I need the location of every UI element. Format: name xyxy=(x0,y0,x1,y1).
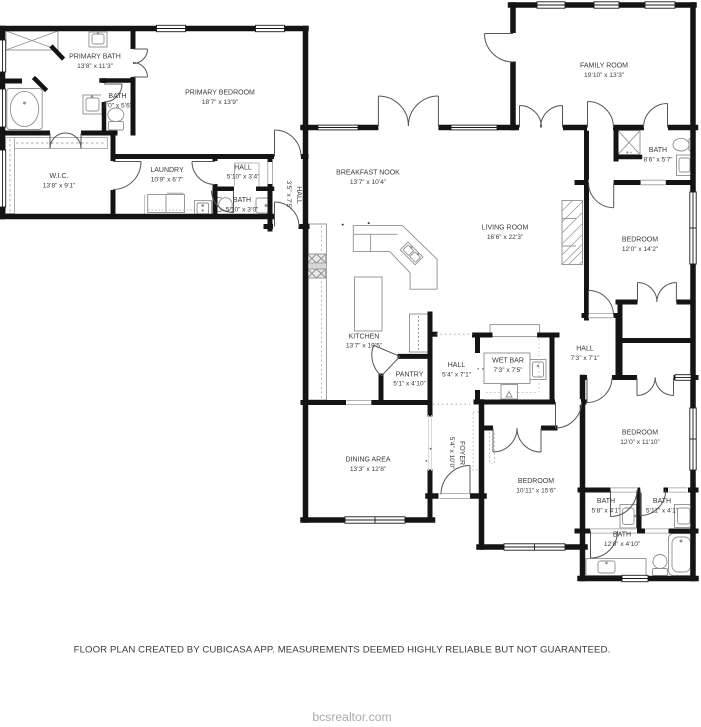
svg-text:5’10” x 3’0”: 5’10” x 3’0” xyxy=(226,207,259,214)
svg-text:5’4” x 7’1”: 5’4” x 7’1” xyxy=(442,371,471,378)
svg-text:13’8” x 11’3”: 13’8” x 11’3” xyxy=(77,63,113,70)
svg-text:BATH: BATH xyxy=(597,498,615,505)
svg-text:KITCHEN: KITCHEN xyxy=(349,334,380,341)
svg-text:5’10” x 3’4”: 5’10” x 3’4” xyxy=(227,174,260,181)
svg-text:BATH: BATH xyxy=(613,532,631,539)
svg-text:19’10” x 13’3”: 19’10” x 13’3” xyxy=(584,72,624,79)
svg-text:5’8” x 4’1”: 5’8” x 4’1” xyxy=(592,507,621,514)
svg-text:13’7” x 19’5”: 13’7” x 19’5” xyxy=(346,343,382,350)
svg-text:HALL: HALL xyxy=(576,346,594,353)
svg-text:HALL: HALL xyxy=(448,362,466,369)
svg-text:13’3” x 12’8”: 13’3” x 12’8” xyxy=(350,466,386,473)
svg-text:DINING AREA: DINING AREA xyxy=(345,457,390,464)
svg-text:BATH: BATH xyxy=(649,147,667,154)
svg-text:5’1” x 4’10”: 5’1” x 4’10” xyxy=(393,381,426,388)
svg-text:3’5” x 7’5”: 3’5” x 7’5” xyxy=(285,181,292,210)
svg-text:HALL: HALL xyxy=(234,165,252,172)
svg-text:bcsrealtor.com: bcsrealtor.com xyxy=(312,710,391,724)
svg-text:PRIMARY BATH: PRIMARY BATH xyxy=(69,54,121,61)
svg-text:WET BAR: WET BAR xyxy=(492,358,524,365)
svg-text:PANTRY: PANTRY xyxy=(396,372,424,379)
svg-text:5’11” x 4’1”: 5’11” x 4’1” xyxy=(646,507,678,514)
svg-text:4’0” x 5’6”: 4’0” x 5’6” xyxy=(103,103,132,110)
svg-text:BEDROOM: BEDROOM xyxy=(622,430,658,437)
svg-text:W.I.C.: W.I.C. xyxy=(49,173,68,180)
svg-text:FOYER: FOYER xyxy=(458,441,465,465)
svg-text:BEDROOM: BEDROOM xyxy=(518,478,554,485)
svg-text:12’0” x 4’10”: 12’0” x 4’10” xyxy=(604,541,640,548)
svg-text:LIVING ROOM: LIVING ROOM xyxy=(482,225,529,232)
svg-text:BATH: BATH xyxy=(233,197,251,204)
svg-text:PRIMARY BEDROOM: PRIMARY BEDROOM xyxy=(185,90,255,97)
svg-text:7’3” x 7’1”: 7’3” x 7’1” xyxy=(571,355,600,362)
svg-text:BATH: BATH xyxy=(653,498,671,505)
svg-text:16’6” x 22’3”: 16’6” x 22’3” xyxy=(487,234,523,241)
svg-text:18’7” x 13’9”: 18’7” x 13’9” xyxy=(202,99,238,106)
svg-text:10’11” x 15’6”: 10’11” x 15’6” xyxy=(516,487,555,494)
svg-text:FAMILY ROOM: FAMILY ROOM xyxy=(580,63,628,70)
svg-text:7’3” x 7’5”: 7’3” x 7’5” xyxy=(494,367,523,374)
svg-text:13’8” x 9’1”: 13’8” x 9’1” xyxy=(43,183,76,190)
svg-text:BREAKFAST NOOK: BREAKFAST NOOK xyxy=(336,170,400,177)
svg-text:5’4” x 10’0”: 5’4” x 10’0” xyxy=(448,437,455,470)
svg-text:10’9” x 6’7”: 10’9” x 6’7” xyxy=(151,177,184,184)
svg-text:BEDROOM: BEDROOM xyxy=(622,237,658,244)
svg-text:FLOOR PLAN CREATED BY CUBICASA: FLOOR PLAN CREATED BY CUBICASA APP. MEAS… xyxy=(74,645,611,656)
svg-text:8’6” x 5’7”: 8’6” x 5’7” xyxy=(644,157,673,164)
svg-text:12’0” x 11’10”: 12’0” x 11’10” xyxy=(620,439,659,446)
svg-text:HALL: HALL xyxy=(295,186,302,204)
svg-text:12’0” x 14’2”: 12’0” x 14’2” xyxy=(622,246,658,253)
svg-text:BATH: BATH xyxy=(108,93,126,100)
svg-text:LAUNDRY: LAUNDRY xyxy=(150,167,184,174)
svg-text:13’7” x 10’4”: 13’7” x 10’4” xyxy=(350,179,386,186)
